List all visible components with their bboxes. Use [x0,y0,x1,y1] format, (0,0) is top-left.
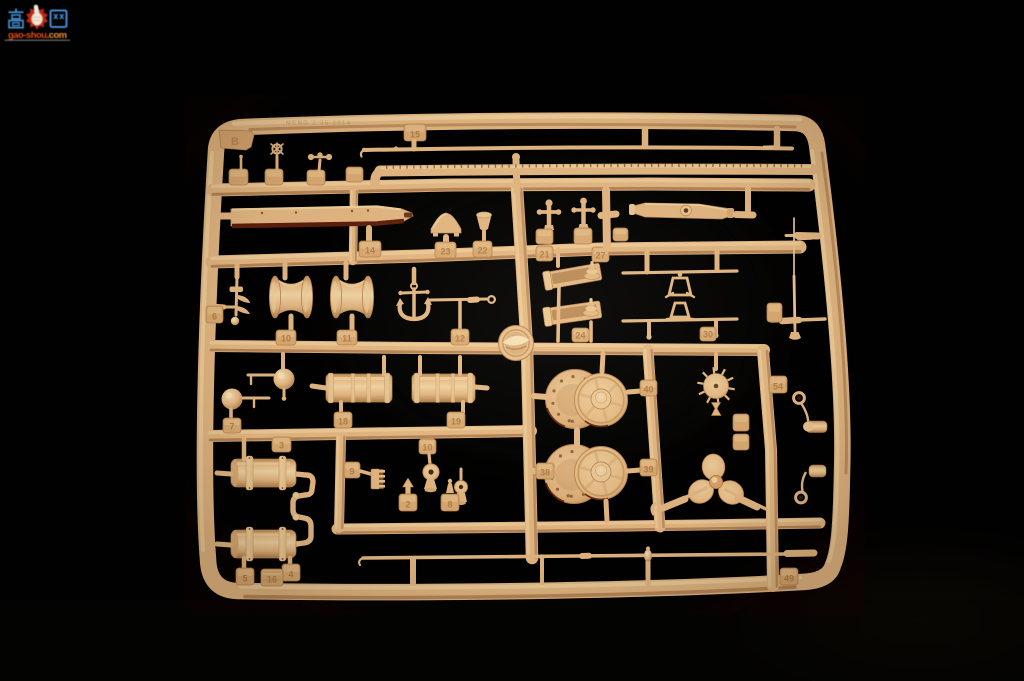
svg-text:gao-shou.com: gao-shou.com [8,29,67,40]
